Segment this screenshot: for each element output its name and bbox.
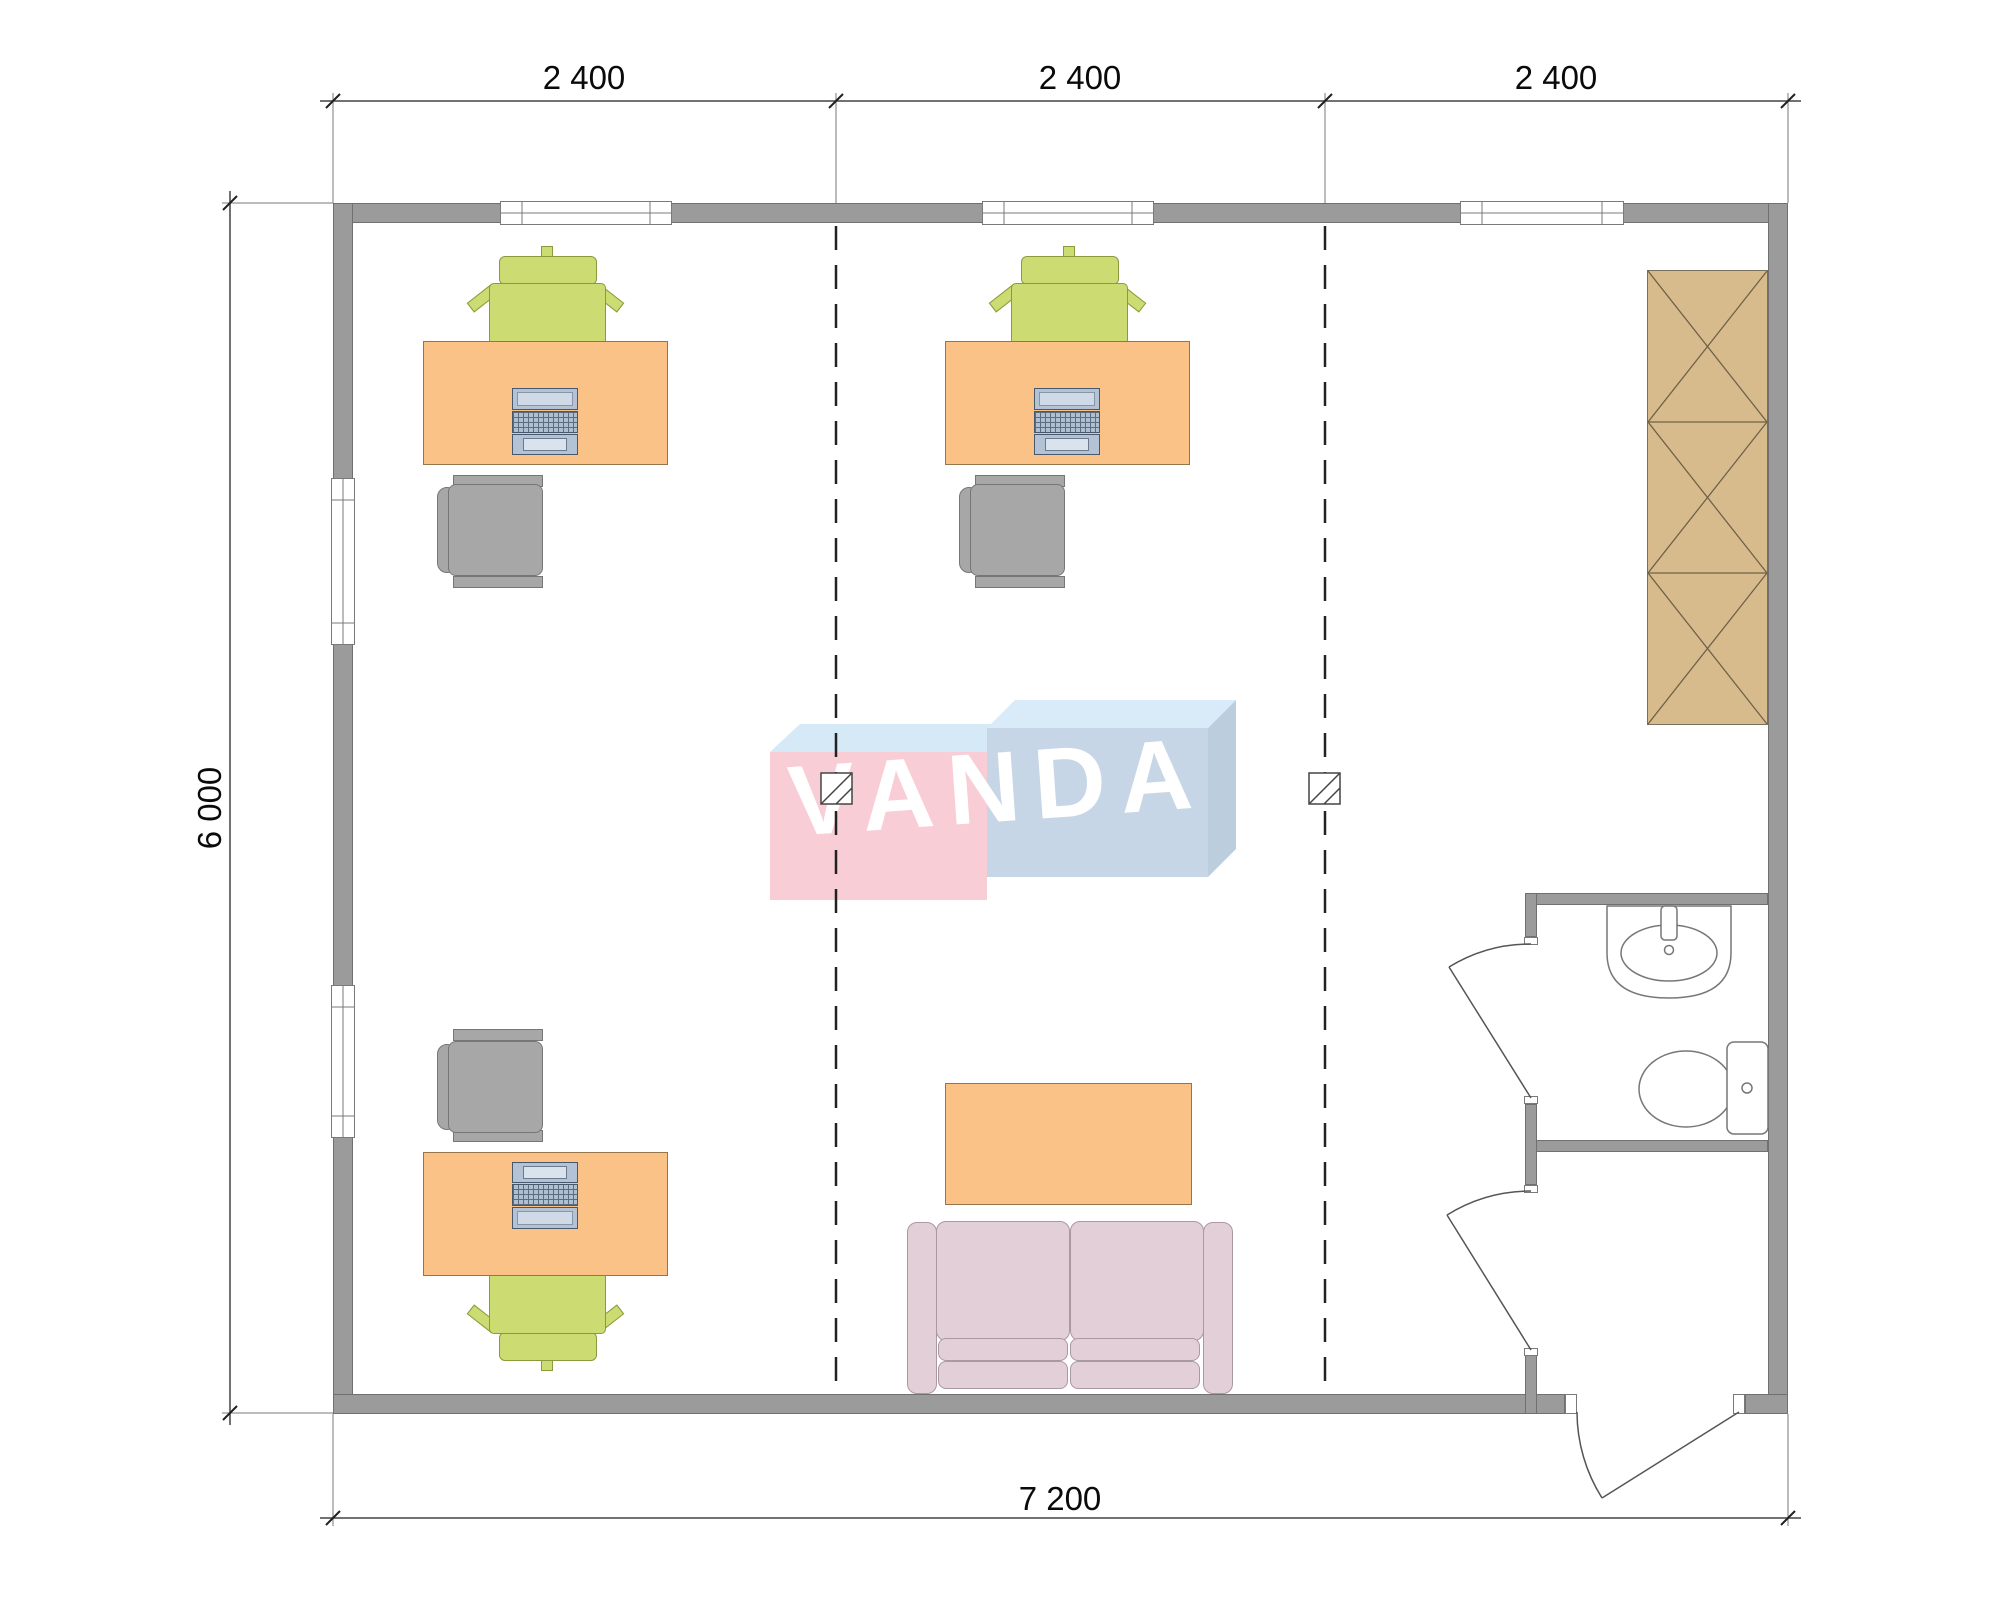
dimension-top-2: 2 400 bbox=[1039, 59, 1122, 97]
dimension-top-1: 2 400 bbox=[543, 59, 626, 97]
dimension-left: 6 000 bbox=[191, 767, 229, 850]
axis-marker-1 bbox=[821, 773, 852, 804]
toilet-flush-button bbox=[1742, 1083, 1752, 1093]
bathroom-door-swing bbox=[1449, 944, 1531, 1098]
hall-door-swing bbox=[1447, 1191, 1531, 1350]
wardrobe-hatch bbox=[1648, 271, 1767, 724]
dimension-lines bbox=[230, 101, 1801, 1518]
dimension-bottom: 7 200 bbox=[1019, 1480, 1102, 1518]
dimension-ticks bbox=[223, 94, 1795, 1525]
toilet bbox=[1639, 1042, 1768, 1134]
window-mullions bbox=[331, 201, 1624, 1138]
sink bbox=[1607, 906, 1731, 998]
extension-lines bbox=[222, 93, 1788, 1526]
dimension-top-3: 2 400 bbox=[1515, 59, 1598, 97]
axis-marker-2 bbox=[1309, 773, 1340, 804]
floor-plan-canvas: VANDA bbox=[0, 0, 2000, 1599]
plan-linework bbox=[0, 0, 2000, 1599]
sink-faucet bbox=[1661, 906, 1677, 940]
sink-drain bbox=[1665, 946, 1674, 955]
entry-door-swing bbox=[1577, 1412, 1739, 1498]
toilet-bowl bbox=[1639, 1051, 1733, 1127]
